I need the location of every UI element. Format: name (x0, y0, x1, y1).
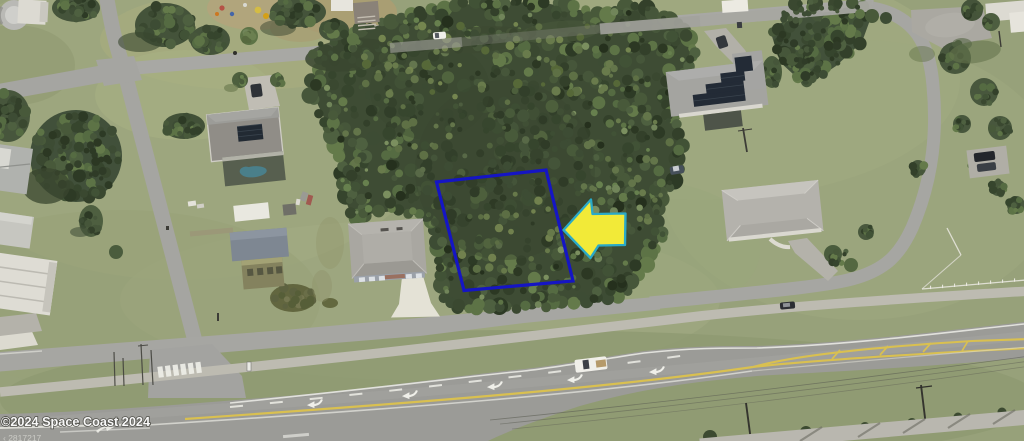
svg-text:©2024 Space Coast 2024: ©2024 Space Coast 2024 (1, 415, 150, 429)
svg-text:‹ 2817217: ‹ 2817217 (3, 433, 42, 441)
